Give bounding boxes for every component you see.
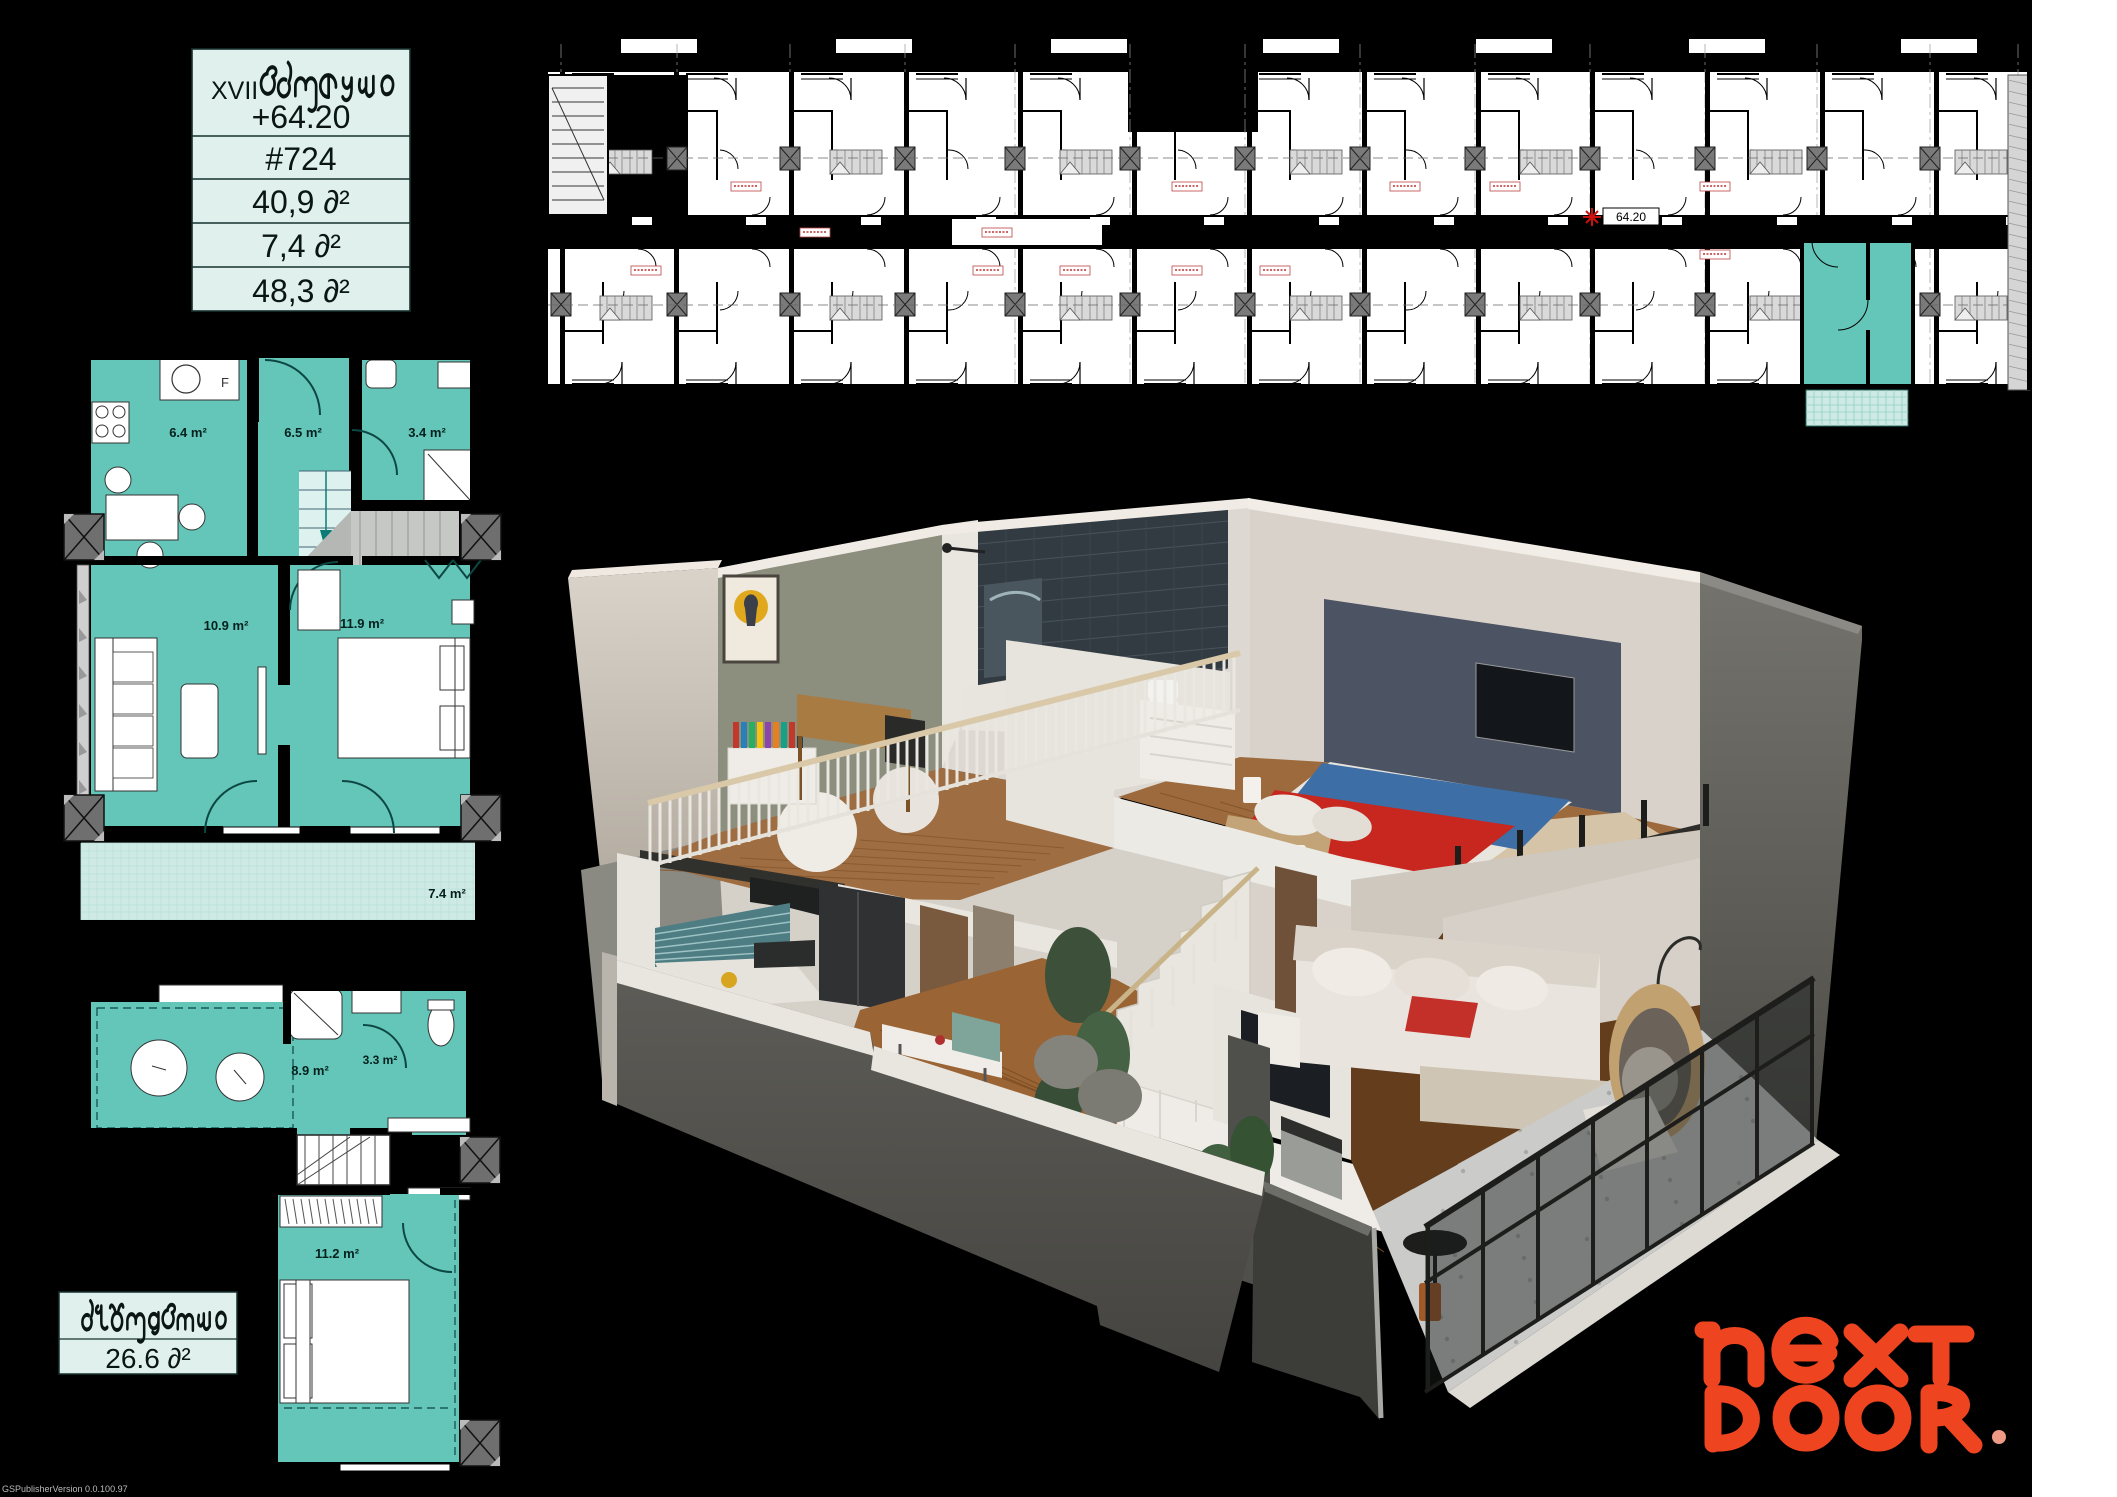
svg-text:GSPublisherVersion 0.0.100.97: GSPublisherVersion 0.0.100.97	[2, 1484, 128, 1494]
svg-text:40,9 ∂²: 40,9 ∂²	[252, 184, 350, 220]
svg-text:11.2 m²: 11.2 m²	[315, 1246, 360, 1261]
svg-text:7.4 m²: 7.4 m²	[428, 886, 466, 901]
svg-text:F: F	[221, 375, 229, 390]
svg-text:6.5 m²: 6.5 m²	[284, 425, 322, 440]
svg-text:6.4 m²: 6.4 m²	[169, 425, 207, 440]
svg-text:48,3 ∂²: 48,3 ∂²	[252, 273, 350, 309]
svg-text:7,4 ∂²: 7,4 ∂²	[261, 228, 341, 264]
svg-text:3.3 m²: 3.3 m²	[363, 1053, 398, 1067]
svg-text:3.4 m²: 3.4 m²	[408, 425, 446, 440]
svg-text:8.9 m²: 8.9 m²	[291, 1063, 329, 1078]
svg-text:#724: #724	[265, 141, 336, 177]
svg-text:64.20: 64.20	[1616, 210, 1646, 224]
svg-text:11.9 m²: 11.9 m²	[340, 616, 385, 631]
svg-text:26.6 ∂²: 26.6 ∂²	[105, 1343, 190, 1374]
svg-text:+64.20: +64.20	[252, 99, 351, 135]
svg-text:10.9 m²: 10.9 m²	[204, 618, 249, 633]
